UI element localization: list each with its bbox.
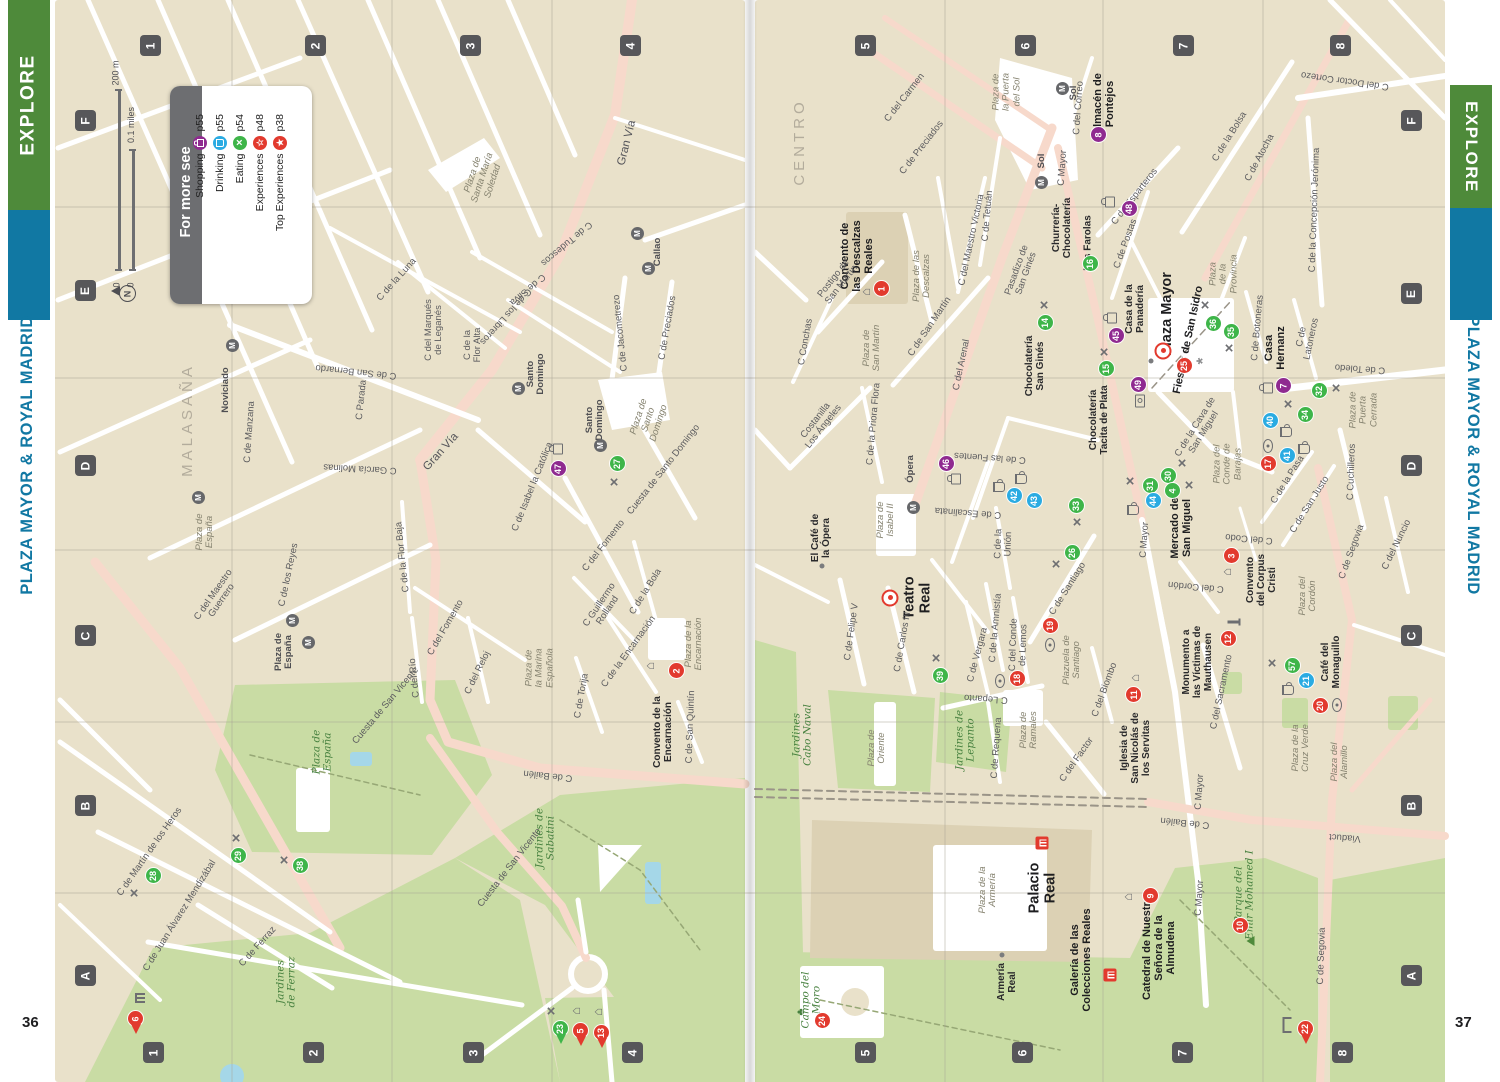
bag-icon — [1263, 383, 1273, 394]
metro-icon: M — [226, 339, 239, 352]
map-label: C del Fomento — [426, 598, 466, 657]
poi-marker-number: 30 — [1163, 470, 1173, 480]
map-label: Plaza de la Cruz Verde — [1291, 724, 1312, 772]
poi-marker-number: 32 — [1314, 385, 1324, 395]
cup-glyph — [216, 139, 224, 147]
legend-entry-label: Eating — [234, 154, 246, 184]
poi-marker: 14 — [1038, 315, 1053, 330]
grid-reference: B — [75, 795, 96, 816]
drink-icon — [1127, 505, 1139, 515]
legend-entry-label: Top Experiences — [274, 154, 286, 232]
cutlery-icon — [276, 856, 294, 865]
poi-marker-pin-tail — [597, 1038, 607, 1053]
poi-marker: 36 — [1206, 316, 1221, 331]
map-label: C de la Concepción Jerónima — [1308, 148, 1323, 273]
map-label: Viaduct — [1329, 831, 1361, 843]
poi-marker: 5 — [573, 1023, 588, 1038]
grid-reference: 6 — [1012, 1042, 1033, 1063]
map-label: C de Manzana — [243, 401, 258, 463]
legend-entry-label: Drinking — [214, 154, 226, 193]
legend-entry: Drinkingp55 — [212, 114, 228, 274]
poi-marker: 33 — [1069, 498, 1084, 513]
grid-reference: 7 — [1173, 35, 1194, 56]
poi-marker: 47 — [551, 461, 566, 476]
poi-marker-number: 1 — [876, 286, 886, 291]
metro-icon: M — [907, 501, 920, 514]
star-outline-icon: ☆ — [253, 136, 267, 150]
cutlery-icon — [928, 654, 946, 663]
map-label: C del Conde de Lemos — [1008, 618, 1030, 671]
poi-marker: 26 — [1065, 545, 1080, 560]
poi-marker-number: 8 — [1093, 132, 1103, 137]
map-label: C de la Encarnación — [600, 614, 659, 689]
map-label: C Lepanto — [964, 691, 1008, 704]
metro-icon: M — [512, 382, 525, 395]
map-label: C de Preciados — [898, 119, 946, 176]
poi-marker: 35 — [1224, 324, 1239, 339]
map-label: C Guillermo Rolland — [581, 581, 626, 634]
map-label: C del Carmen — [883, 72, 927, 124]
map-label: C del Factor — [1058, 736, 1096, 784]
map-label: Noviciado — [221, 367, 231, 412]
grid-reference: C — [1401, 625, 1422, 646]
map-label: C de San Justo — [1288, 475, 1331, 536]
cutlery-icon — [1197, 301, 1215, 310]
legend-box: For more see Top Experiences★p38Experien… — [170, 86, 312, 304]
map-label: C de la Luna — [375, 257, 419, 304]
poi-marker: 6 — [128, 1011, 143, 1026]
grid-reference-text: F — [79, 117, 93, 124]
poi-marker-number: 12 — [1223, 633, 1233, 643]
map-label: Costanilla Los Ángeles — [796, 397, 844, 451]
grid-reference: A — [75, 965, 96, 986]
bag-icon — [553, 444, 563, 455]
landmark-icon — [1104, 969, 1117, 982]
cutlery-icon — [1181, 481, 1199, 490]
bag-icon — [1107, 313, 1117, 324]
map-label: Plaza del Cordón — [1298, 576, 1319, 615]
cutlery-icon — [1174, 459, 1192, 468]
map-label: C de Esparteros — [1110, 167, 1160, 227]
map-label: C Mayor — [1057, 150, 1070, 187]
poi-marker: 23 — [553, 1021, 568, 1036]
poi-marker-number: 41 — [1282, 450, 1292, 460]
grid-reference-text: 1 — [144, 42, 158, 49]
tree-icon — [1242, 936, 1255, 946]
map-label: C de Carlos III — [893, 611, 914, 673]
poi-marker: 18 — [1010, 671, 1025, 686]
map-label: C del Fomento — [581, 518, 627, 573]
poi-marker: 31 — [1143, 478, 1158, 493]
map-label: Mercado de San Miguel — [1170, 497, 1194, 558]
metro-icon: M — [594, 439, 607, 452]
map-label: CENTRO — [792, 98, 808, 185]
map-label: C de la Bola — [628, 567, 664, 616]
poi-marker-pin-tail — [576, 1036, 586, 1051]
scale-tick — [129, 269, 136, 271]
map-label: C de las Fuentes — [954, 449, 1026, 464]
map-label: Plaza de España — [274, 633, 295, 671]
map-label: C de la Unión — [993, 529, 1015, 560]
poi-marker-number: 6 — [130, 1016, 140, 1021]
grid-reference: 7 — [1172, 1042, 1193, 1063]
poi-marker: 11 — [1126, 687, 1141, 702]
map-label: Casa Hernanz — [1264, 326, 1288, 369]
poi-marker: 28 — [146, 868, 161, 883]
grid-reference: 4 — [622, 1042, 643, 1063]
page-number-right: 37 — [1455, 1014, 1472, 1031]
eye-icon — [995, 674, 1005, 688]
poi-marker: 21 — [1299, 673, 1314, 688]
poi-marker: 1 — [874, 281, 889, 296]
poi-marker-number: 48 — [1124, 203, 1134, 213]
poi-marker: 46 — [939, 456, 954, 471]
map-label: C del Doctor Cortezo — [1300, 69, 1389, 91]
grid-reference-text: 5 — [859, 1049, 873, 1056]
grid-reference-text: 2 — [307, 1049, 321, 1056]
metro-icon: M — [631, 227, 644, 240]
poi-marker-number: 19 — [1045, 620, 1055, 630]
map-label: Cuesta de San Vicente — [351, 666, 421, 747]
map-label: C de Latoneros — [1293, 315, 1322, 361]
grid-reference-text: 5 — [859, 42, 873, 49]
map-label: Plazuela de Santiago — [1062, 635, 1083, 685]
metro-icon: M — [1056, 82, 1069, 95]
map-label: MALASAÑA — [180, 363, 196, 477]
poi-marker-number: 49 — [1133, 379, 1143, 389]
drink-icon — [1282, 685, 1294, 695]
metro-m: M — [909, 504, 918, 511]
poi-marker-number: 22 — [1300, 1023, 1310, 1033]
poi-marker: 27 — [610, 456, 625, 471]
dot-icon — [820, 564, 825, 569]
grid-reference-text: 8 — [1334, 42, 1348, 49]
grid-reference: 6 — [1015, 35, 1036, 56]
metro-m: M — [1037, 179, 1046, 186]
map-label: C Cuchilleros — [1346, 444, 1358, 501]
poi-marker-number: 34 — [1300, 409, 1310, 419]
map-label: C de los Reyes — [277, 542, 300, 607]
scale-bar-metric — [118, 90, 121, 270]
map-label: Pasadizo de San Ginés — [1003, 244, 1040, 300]
map-label: C del Biombo — [1090, 661, 1119, 718]
map-label: C del Arenal — [952, 339, 973, 392]
metro-m: M — [288, 617, 297, 624]
grid-reference-text: B — [1404, 801, 1418, 810]
map-label: C de la Priora Flora — [865, 383, 882, 466]
map-label: Monumento a las Víctimas de Mauthausen — [1182, 626, 1214, 698]
map-label: Gran Vía — [615, 119, 638, 167]
poi-marker-number: 45 — [1111, 330, 1121, 340]
poi-marker: 38 — [293, 858, 308, 873]
poi-marker: 41 — [1280, 448, 1295, 463]
church-icon — [1126, 674, 1144, 682]
cutlery-icon — [1036, 301, 1054, 310]
grid-reference-text: D — [1404, 461, 1418, 470]
map-label: Callao — [653, 238, 663, 267]
grid-reference-text: E — [1404, 289, 1418, 297]
poi-marker: 4 — [1165, 483, 1180, 498]
map-label: Plaza de la Marina Española — [525, 648, 556, 688]
grid-reference-text: 4 — [626, 1049, 640, 1056]
church-icon — [589, 1008, 607, 1016]
map-label: Armería Real — [997, 963, 1019, 1001]
legend-entry-page: p55 — [214, 114, 226, 132]
poi-marker: 16 — [1083, 256, 1098, 271]
bag-icon — [1105, 197, 1115, 208]
bullseye-icon — [882, 590, 899, 607]
grid-reference-text: 1 — [147, 1049, 161, 1056]
map-label: C Mayor — [1194, 880, 1207, 917]
poi-marker-number: 47 — [553, 463, 563, 473]
map-label: Plaza del Conde de Barajas — [1213, 443, 1244, 484]
grid-reference-text: 7 — [1176, 1049, 1190, 1056]
grid-reference-text: C — [78, 631, 92, 640]
map-label: C de Preciados — [657, 295, 678, 361]
poi-marker: 8 — [1091, 127, 1106, 142]
grid-reference: E — [75, 280, 96, 301]
map-label: Convento del Corpus Cristi — [1246, 554, 1278, 606]
grid-reference-text: A — [1404, 971, 1418, 980]
grid-reference-text: 7 — [1177, 42, 1191, 49]
map-label: Plaza de las Descalzas — [912, 250, 933, 302]
metro-icon: M — [286, 614, 299, 627]
poi-marker-number: 46 — [941, 458, 951, 468]
chapter-title-right: PLAZA MAYOR & ROYAL MADRID — [1460, 265, 1482, 645]
temple-icon — [135, 993, 145, 1003]
north-circle: N — [119, 285, 136, 302]
map-label: C de Segovia — [1337, 523, 1366, 580]
map-label: Iglesia de San Nicolás de los Servitas — [1120, 712, 1152, 783]
map-label: C de Martín de los Heros — [116, 806, 185, 898]
grid-reference: 2 — [303, 1042, 324, 1063]
poi-marker-pin-tail — [131, 1024, 141, 1039]
metro-m: M — [304, 639, 313, 646]
grid-reference-text: 6 — [1016, 1049, 1030, 1056]
map-label: Plaza de Santa María Soledad — [460, 149, 505, 208]
map-label: C del Marqués de Leganés — [424, 299, 445, 361]
poi-marker-number: 44 — [1148, 495, 1158, 505]
page-gutter — [743, 0, 757, 1082]
bridge-icon — [1283, 1017, 1292, 1033]
map-label: C de Bailén — [1160, 814, 1210, 829]
poi-marker-number: 4 — [1167, 488, 1177, 493]
legend-entry-page: p55 — [194, 114, 206, 132]
grid-reference: D — [75, 455, 96, 476]
poi-marker-number: 25 — [1179, 360, 1189, 370]
metro-icon: M — [1035, 176, 1048, 189]
legend-entry-label: Experiences — [254, 154, 266, 212]
map-label: Plaza de España — [312, 730, 335, 775]
grid-reference: 3 — [463, 1042, 484, 1063]
poi-marker: 43 — [1027, 493, 1042, 508]
north-letter: N — [123, 290, 133, 297]
poi-marker: 7 — [1276, 378, 1291, 393]
map-label: C de Isabel la Católica — [510, 441, 555, 533]
drinking-icon — [213, 136, 227, 150]
map-label: Santo Domingo — [526, 353, 547, 394]
legend-entry: Experiences☆p48 — [252, 114, 268, 274]
map-label: C de la Flor Alta — [463, 328, 484, 363]
poi-marker-number: 57 — [1287, 660, 1297, 670]
explore-label-right: EXPLORE — [1461, 101, 1481, 193]
map-label: C del Reloj — [463, 650, 493, 696]
poi-marker-number: 38 — [295, 860, 305, 870]
grid-reference-text: B — [78, 801, 92, 810]
map-label: Santo Domingo — [585, 399, 606, 440]
poi-marker: 3 — [1224, 548, 1239, 563]
poi-marker: 34 — [1298, 407, 1313, 422]
map-label: Jardines Cabo Naval — [792, 704, 815, 766]
map-label: C Mayor — [1139, 522, 1152, 559]
grid-reference: 1 — [143, 1042, 164, 1063]
bullseye-icon — [1155, 343, 1172, 360]
poi-marker: 12 — [1221, 631, 1236, 646]
poi-marker-number: 31 — [1145, 480, 1155, 490]
map-label: C Mayor — [1194, 774, 1207, 811]
poi-marker: 2 — [669, 663, 684, 678]
map-label: C de San Bernardo — [315, 362, 397, 381]
metro-m: M — [514, 385, 523, 392]
map-label: Almacén de Pontejos — [1093, 73, 1117, 135]
poi-marker-number: 43 — [1029, 495, 1039, 505]
map-label: Plaza de la Puerta del Sol — [992, 73, 1023, 111]
poi-marker-pin-tail — [556, 1034, 566, 1049]
star-filled-icon: ★ — [273, 136, 287, 150]
map-label: C de la Flor Baja — [394, 521, 412, 592]
poi-marker-number: 3 — [1226, 553, 1236, 558]
map-label: C de la Bolsa — [1211, 110, 1250, 163]
bag-icon — [951, 474, 961, 485]
metro-m: M — [194, 494, 203, 501]
cutlery-icon — [606, 478, 624, 487]
map-label: Jardines de Ferraz — [276, 956, 299, 1007]
grid-reference: F — [75, 110, 96, 131]
dot-icon — [1149, 359, 1154, 364]
map-label: Plaza de Puerta Cerrada — [1349, 392, 1380, 429]
map-label: C de Santiago — [1048, 561, 1089, 618]
map-label: Chocolatería Tacita de Plata — [1089, 385, 1111, 454]
poi-marker: 17 — [1261, 456, 1276, 471]
map-label: C de Felipe V — [843, 603, 861, 661]
grid-reference-text: 3 — [467, 1049, 481, 1056]
church-icon — [641, 662, 659, 670]
north-arrow-icon — [106, 286, 120, 296]
dot-icon — [1000, 953, 1005, 958]
map-label: C de Tudescos — [538, 219, 593, 268]
fireworks-icon — [1193, 358, 1213, 365]
grid-reference: 3 — [460, 35, 481, 56]
map-label: C de Segovia — [1316, 927, 1328, 984]
legend-entry-page: p38 — [274, 114, 286, 132]
poi-marker-number: 40 — [1265, 415, 1275, 425]
poi-marker-number: 33 — [1071, 500, 1081, 510]
drink-icon — [1280, 427, 1292, 437]
eye-icon — [1332, 698, 1342, 712]
bag-glyph — [197, 139, 204, 147]
legend-entry: Eating×p54 — [232, 114, 248, 274]
poi-marker-number: 28 — [148, 870, 158, 880]
legend-entry: Top Experiences★p38 — [272, 114, 288, 274]
poi-marker-number: 29 — [233, 850, 243, 860]
cutlery-icon — [126, 889, 144, 898]
drink-icon — [1298, 444, 1310, 454]
poi-marker-pin-tail — [1301, 1034, 1311, 1049]
camera-icon — [1135, 395, 1145, 408]
poi-marker-number: 15 — [1101, 363, 1111, 373]
shopping-icon — [193, 136, 207, 150]
map-label: Sol — [1037, 154, 1047, 169]
map-label: C de Ferraz — [237, 925, 278, 969]
poi-marker: 24 — [815, 1013, 830, 1028]
grid-reference: F — [1401, 110, 1422, 131]
grid-reference: C — [75, 625, 96, 646]
map-label: Plaza de San Martín — [862, 325, 883, 371]
poi-marker: 30 — [1161, 468, 1176, 483]
guidebook-map-spread: MALASAÑAC de San BernardoNoviciadoC de M… — [0, 0, 1500, 1082]
grid-reference-text: E — [78, 286, 92, 294]
poi-marker: 15 — [1099, 361, 1114, 376]
map-label: Café del Monaguillo — [1321, 636, 1343, 689]
map-label: C de Requena — [990, 717, 1004, 779]
map-label: C de la Amnistía — [988, 593, 1004, 663]
poi-marker-number: 14 — [1040, 317, 1050, 327]
poi-marker-number: 21 — [1301, 675, 1311, 685]
cutlery-icon — [1122, 477, 1140, 486]
cutlery-icon — [1096, 348, 1114, 357]
cutlery-icon — [1069, 518, 1087, 527]
explore-tab-left: EXPLORE — [8, 0, 50, 210]
church-icon — [567, 1007, 585, 1015]
cutlery-icon — [1328, 384, 1346, 393]
poi-marker-number: 20 — [1315, 700, 1325, 710]
grid-reference: 8 — [1330, 35, 1351, 56]
church-icon — [1119, 893, 1137, 901]
metro-m: M — [228, 342, 237, 349]
poi-marker: 42 — [1007, 488, 1022, 503]
cutlery-icon — [1280, 400, 1298, 409]
map-label: Galería de las Colecciones Reales — [1070, 908, 1094, 1011]
map-label: C del Maestro Guerrero — [193, 568, 244, 628]
scale-tick — [115, 269, 122, 271]
grid-reference-text: D — [78, 461, 92, 470]
metro-m: M — [633, 230, 642, 237]
drink-icon — [1015, 474, 1027, 484]
grid-reference: 5 — [855, 1042, 876, 1063]
map-label: C de Escalinata — [934, 505, 1001, 520]
grid-reference: 8 — [1332, 1042, 1353, 1063]
leaf-icon — [791, 1008, 809, 1015]
poi-marker: 44 — [1146, 493, 1161, 508]
poi-marker-number: 42 — [1009, 490, 1019, 500]
grid-reference-text: 6 — [1019, 42, 1033, 49]
grid-reference-text: 4 — [624, 42, 638, 49]
eye-icon — [1045, 638, 1055, 652]
poi-marker-number: 27 — [612, 458, 622, 468]
drink-icon — [993, 482, 1005, 492]
poi-marker-number: 35 — [1226, 326, 1236, 336]
grid-reference-text: 2 — [309, 42, 323, 49]
map-label: Plaza de Oriente — [867, 730, 888, 767]
map-label: Plaza de la Encarnación — [684, 618, 705, 671]
scale-metric-max: 200 m — [111, 60, 121, 85]
map-label: Jardines de Lepanto — [955, 710, 978, 770]
poi-marker-number: 18 — [1012, 673, 1022, 683]
church-icon — [857, 288, 875, 296]
explore-label-left: EXPLORE — [18, 54, 40, 155]
map-label: Plaza de la Provincia — [1209, 254, 1240, 293]
scale-bar-imperial — [132, 150, 135, 270]
